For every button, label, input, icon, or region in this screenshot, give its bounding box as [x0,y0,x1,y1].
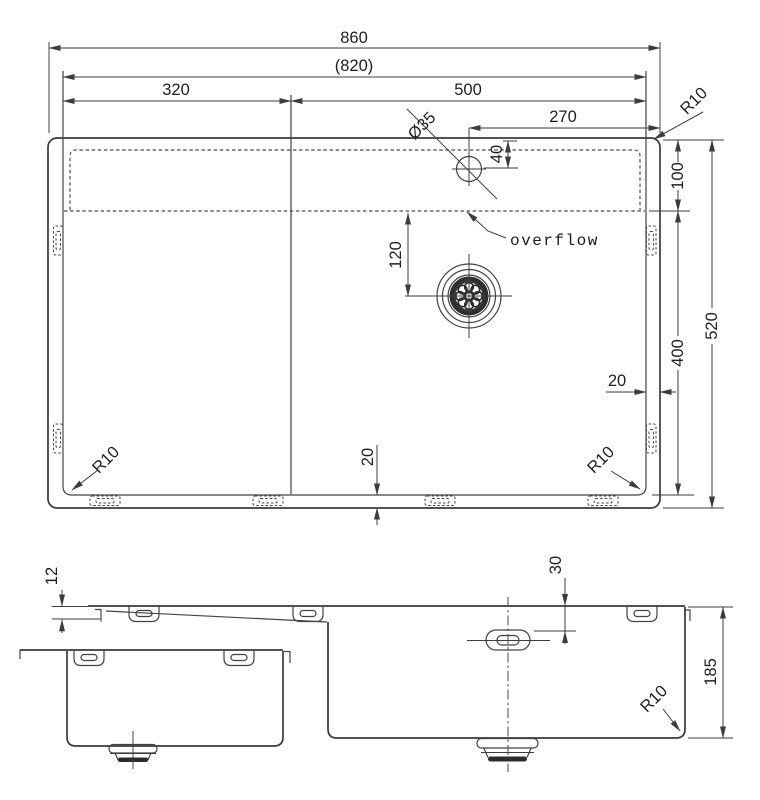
drawing-svg: Ø35 860 [0,0,760,800]
dim-820: (820) [63,57,646,77]
dim-520: 520 [703,140,721,508]
dim-500: 500 [291,81,646,101]
dim-270-label: 270 [549,108,577,126]
main-bowl-profile [328,607,685,738]
dim-120: 120 [387,213,408,296]
drain [405,254,512,338]
dim-320-label: 320 [162,81,190,99]
dim-120-label: 120 [387,241,405,269]
r10-top-right-label: R10 [677,84,711,118]
dim-185: 185 [688,607,733,738]
overflow-label: overflow [510,232,599,250]
dim-820-label: (820) [335,57,374,75]
dim-400-label: 400 [669,339,687,367]
tray-lip-fold [284,652,290,664]
dim-860-label: 860 [340,29,368,47]
deck-hidden-edge [70,150,640,210]
dim-100: 100 [669,140,687,211]
dim-30: 30 [534,556,576,644]
dim-500-label: 500 [454,81,482,99]
drain-centerlines [405,254,512,338]
left-lip-fold [95,610,101,622]
dim-20-right: 20 [606,372,676,392]
r10-side-label: R10 [637,682,671,716]
left-tray [20,650,290,769]
dim-40-label: 40 [488,145,506,163]
dim-12-label: 12 [43,567,61,585]
bowl-edge [63,71,646,495]
sink-outer-edge [48,138,660,508]
dim-30-label: 30 [547,556,565,574]
side-view: 12 30 185 R10 [20,556,733,772]
dim-320: 320 [63,81,291,101]
r10-bottom-left-label: R10 [89,443,123,477]
dim-20-right-label: 20 [608,372,626,390]
dim-20-bottom: 20 [359,445,377,525]
dim-520-label: 520 [703,312,721,340]
dim-100-label: 100 [669,162,687,190]
radius-top-right: R10 [654,84,711,139]
overflow-callout: overflow [467,212,599,250]
flange-clips [129,607,657,622]
radius-bottom-left: R10 [72,443,123,490]
dim-40: 40 [484,141,518,168]
dim-185-label: 185 [702,658,720,686]
mounting-clips-top-view [54,226,657,506]
dim-12: 12 [43,567,100,633]
dim-20-bottom-label: 20 [359,448,377,466]
tray-drain [109,731,157,769]
radius-side: R10 [637,682,680,731]
sink-technical-drawing: Ø35 860 [0,0,760,800]
top-view: Ø35 860 [48,29,724,525]
dim-400: 400 [669,211,687,495]
radius-bottom-right: R10 [584,443,640,489]
